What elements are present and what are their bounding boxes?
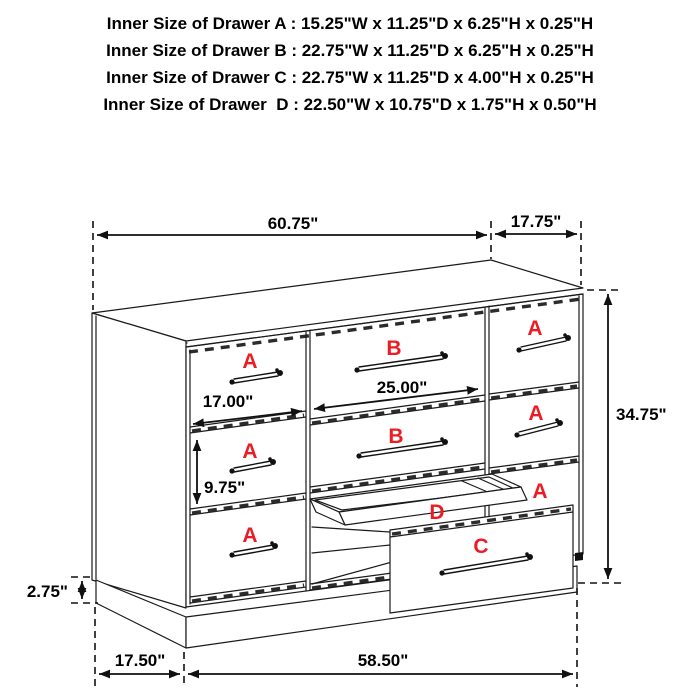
dimension-text-base-height: 2.75" [27, 582, 68, 601]
drawer-label-d-tray: D [429, 501, 444, 524]
drawer-label-a-left-top: A [242, 350, 257, 373]
dimension-overall-height: 34.75" [578, 290, 667, 583]
drawer-label-a-right-middle: A [528, 402, 543, 425]
dimension-text-large-drawer-width: 25.00" [377, 378, 428, 397]
drawer-label-b-top: B [386, 337, 401, 360]
left-side-panel [92, 313, 186, 608]
drawer-label-a-right-top: A [527, 317, 542, 340]
dresser-dimension-diagram: Inner Size of Drawer A : 15.25"W x 11.25… [0, 0, 700, 700]
dimension-text-top-width: 60.75" [268, 214, 319, 233]
dimension-text-base-width: 58.50" [358, 651, 409, 670]
dimension-text-drawer-front-height: 9.75" [204, 478, 245, 497]
dimension-text-small-drawer-width: 17.00" [203, 392, 254, 411]
drawer-label-a-left-bottom: A [242, 524, 257, 547]
cabinet-structure [92, 260, 583, 648]
dimension-base-height: 2.75" [27, 577, 98, 603]
drawer-label-c-front: C [473, 535, 488, 558]
drawer-label-b-middle: B [388, 425, 403, 448]
drawer-label-a-right-bottom: A [532, 480, 547, 503]
drawer-label-a-left-middle: A [242, 440, 257, 463]
dimension-text-overall-height: 34.75" [616, 405, 667, 424]
dresser-line-drawing: A A A B B A A A D C 60.75" 17.75" [0, 0, 700, 700]
dimension-text-top-depth: 17.75" [511, 212, 562, 231]
dimension-text-base-side-depth: 17.50" [115, 651, 166, 670]
cabinet-right-foot [575, 552, 583, 561]
